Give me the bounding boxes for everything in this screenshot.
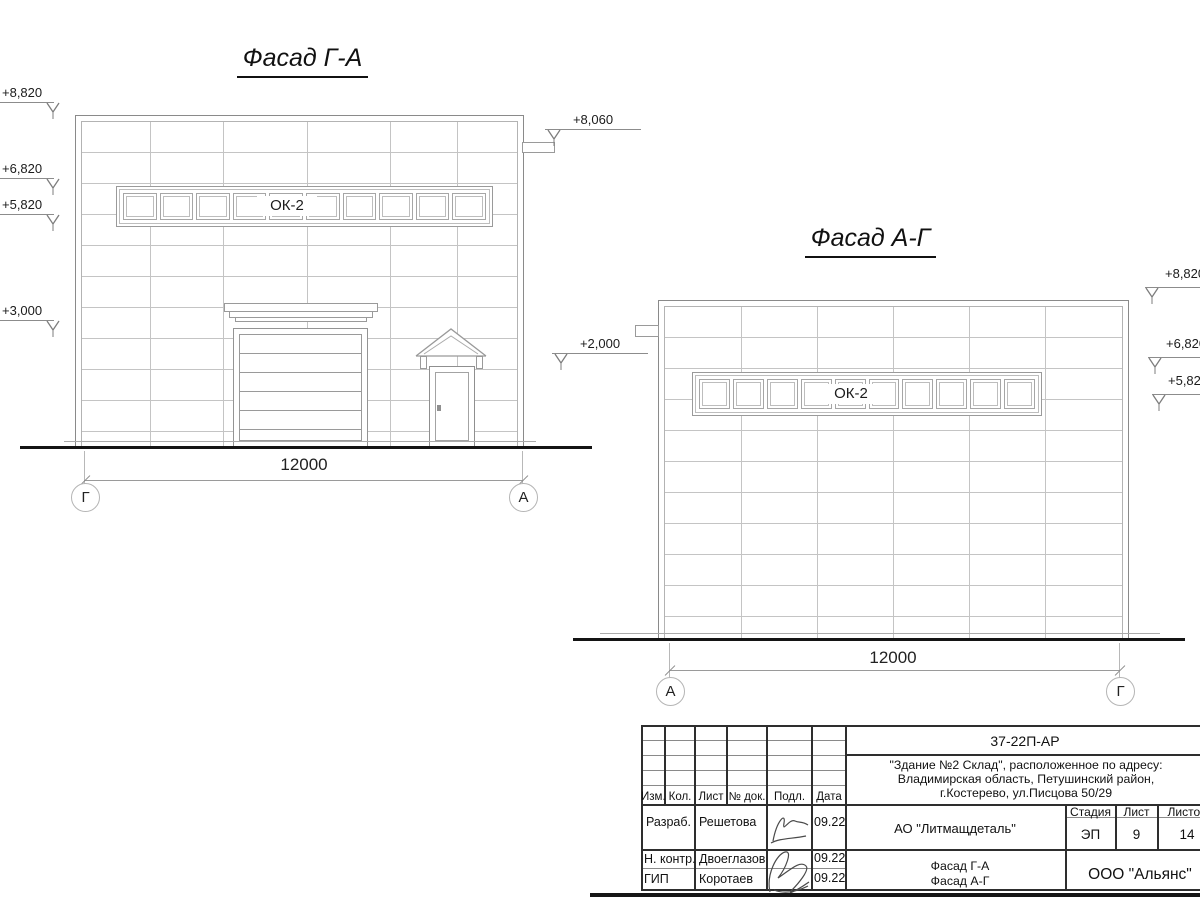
window xyxy=(379,193,413,220)
dimension-line xyxy=(84,480,523,481)
facade-right-mullion xyxy=(893,307,894,640)
titleblock-line xyxy=(641,755,845,756)
window xyxy=(416,193,450,220)
address-line: "Здание №2 Склад", расположенное по адре… xyxy=(845,759,1200,773)
col-header-docnum: № док. xyxy=(727,790,767,805)
name-nkontr: Двоеглазов xyxy=(699,852,765,866)
col-header-podp: Подл. xyxy=(767,790,812,805)
date-nkontr: 09.22 xyxy=(814,851,845,865)
col-header-data: Дата xyxy=(812,790,846,805)
elevation-mark: +6,820 xyxy=(0,161,54,179)
facade-left-title: Фасад Г-А xyxy=(190,44,415,78)
name-gip: Коротаев xyxy=(699,872,753,886)
window-band-label: ОК-2 xyxy=(820,384,882,404)
titleblock-line xyxy=(845,754,1200,756)
window-frame xyxy=(346,196,374,217)
pediment-post xyxy=(476,356,483,369)
elevation-arrow-icon xyxy=(46,214,60,232)
titleblock-line xyxy=(641,868,845,869)
facade-right-mullion xyxy=(817,307,818,640)
elevation-mark: +8,820 xyxy=(1145,266,1200,288)
facade-right-title: Фасад А-Г xyxy=(758,224,983,258)
window xyxy=(767,379,798,409)
titleblock-line xyxy=(641,725,1200,727)
pediment-post xyxy=(420,356,427,369)
elevation-mark: +8,820 xyxy=(0,85,54,103)
plinth-line xyxy=(600,633,1160,634)
gate-slats xyxy=(239,334,362,441)
window-frame xyxy=(973,382,998,406)
stage-value: ЭП xyxy=(1066,827,1115,842)
elevation-mark: +2,000 xyxy=(552,336,648,354)
doc-number: 37-22П-АР xyxy=(845,733,1200,749)
window xyxy=(902,379,933,409)
elevation-arrow-icon xyxy=(1152,394,1166,412)
client-name: АО "Литмащдеталь" xyxy=(845,821,1065,836)
dimension-line xyxy=(669,670,1120,671)
axis-bubble: Г xyxy=(1106,677,1135,706)
sheet-header: Лист xyxy=(1116,805,1157,819)
entrance-door xyxy=(429,366,475,447)
elevation-mark: +3,000 xyxy=(0,303,54,321)
axis-label: А xyxy=(518,489,528,506)
window-frame xyxy=(455,196,483,217)
extension-line xyxy=(669,643,670,678)
role-nkontr: Н. контр. xyxy=(644,852,696,866)
col-header-list: Лист xyxy=(695,790,727,805)
dimension-value: 12000 xyxy=(254,455,354,475)
plinth-line xyxy=(64,441,536,442)
door-handle-icon xyxy=(437,405,441,411)
window-frame xyxy=(905,382,930,406)
window xyxy=(452,193,486,220)
project-address: "Здание №2 Склад", расположенное по адре… xyxy=(845,759,1200,800)
facade-right-mullion xyxy=(741,307,742,640)
titleblock-line xyxy=(641,770,845,771)
ground-line xyxy=(573,638,1185,641)
window-frame xyxy=(199,196,227,217)
elevation-mark: +8,060 xyxy=(545,112,641,130)
elevation-arrow-icon xyxy=(554,353,568,371)
address-line: г.Костерево, ул.Писцова 50/29 xyxy=(845,787,1200,801)
facade-left-mullion xyxy=(150,122,151,448)
facade-right-mullion xyxy=(969,307,970,640)
signature xyxy=(768,808,812,850)
axis-label: А xyxy=(665,683,675,700)
elevation-arrow-icon xyxy=(1145,287,1159,305)
stage-header: Стадия xyxy=(1066,805,1115,819)
window-frame xyxy=(702,382,727,406)
col-header-izm: Изм. xyxy=(641,790,665,805)
elevation-arrow-icon xyxy=(46,178,60,196)
facade-right-mullion xyxy=(1045,307,1046,640)
elevation-mark: +5,820 xyxy=(0,197,54,215)
window-band-label: ОК-2 xyxy=(257,196,317,216)
window xyxy=(699,379,730,409)
window xyxy=(123,193,157,220)
window xyxy=(196,193,230,220)
window xyxy=(970,379,1001,409)
titleblock-line xyxy=(641,889,1200,891)
elevation-arrow-icon xyxy=(547,129,561,147)
axis-label: Г xyxy=(81,489,89,506)
elevation-mark: +5,820 xyxy=(1152,373,1200,395)
window-frame xyxy=(939,382,964,406)
window xyxy=(733,379,764,409)
extension-line xyxy=(1119,643,1120,678)
door-pediment xyxy=(414,325,488,358)
window-frame xyxy=(382,196,410,217)
dimension-value: 12000 xyxy=(843,648,943,668)
window xyxy=(936,379,967,409)
window xyxy=(1004,379,1035,409)
window-frame xyxy=(770,382,795,406)
sheets-total-value: 14 xyxy=(1158,827,1200,842)
titleblock-line xyxy=(694,725,696,891)
elevation-arrow-icon xyxy=(46,102,60,120)
axis-bubble: Г xyxy=(71,483,100,512)
date-gip: 09.22 xyxy=(814,871,845,885)
elevation-mark: +6,820 xyxy=(1148,336,1200,358)
axis-label: Г xyxy=(1116,683,1124,700)
name-razrab: Решетова xyxy=(699,815,756,829)
window-frame xyxy=(736,382,761,406)
role-razrab: Разраб. xyxy=(646,815,691,829)
date-razrab: 09.22 xyxy=(814,815,845,829)
facade-left-mullion xyxy=(223,122,224,448)
titleblock-line xyxy=(641,740,845,741)
sheets-total-header: Листов xyxy=(1158,805,1200,819)
window-frame xyxy=(1007,382,1032,406)
gate-canopy xyxy=(235,317,367,322)
ground-line xyxy=(20,446,592,449)
facade-left-mullion xyxy=(390,122,391,448)
sheet-border-bar xyxy=(590,893,1200,897)
window xyxy=(343,193,377,220)
sheet-subject-line1: Фасад Г-А xyxy=(845,859,1075,873)
signature xyxy=(762,846,814,898)
sectional-gate xyxy=(233,328,368,447)
window-frame xyxy=(163,196,191,217)
window-frame xyxy=(126,196,154,217)
axis-bubble: А xyxy=(509,483,538,512)
sheet-subject-line2: Фасад А-Г xyxy=(845,874,1075,888)
sheet-value: 9 xyxy=(1116,827,1157,842)
address-line: Владимирская область, Петушинский район, xyxy=(845,773,1200,787)
window-frame xyxy=(419,196,447,217)
titleblock-line xyxy=(641,725,643,891)
parapet-scupper xyxy=(635,325,659,337)
titleblock-line xyxy=(641,785,845,786)
role-gip: ГИП xyxy=(644,872,669,886)
window xyxy=(160,193,194,220)
elevation-arrow-icon xyxy=(46,320,60,338)
col-header-kol: Кол. xyxy=(665,790,695,805)
drawing-sheet: { "facade_left": { "title": "Фасад Г-А",… xyxy=(0,0,1200,900)
axis-bubble: А xyxy=(656,677,685,706)
company-name: ООО "Альянс" xyxy=(1065,866,1200,884)
